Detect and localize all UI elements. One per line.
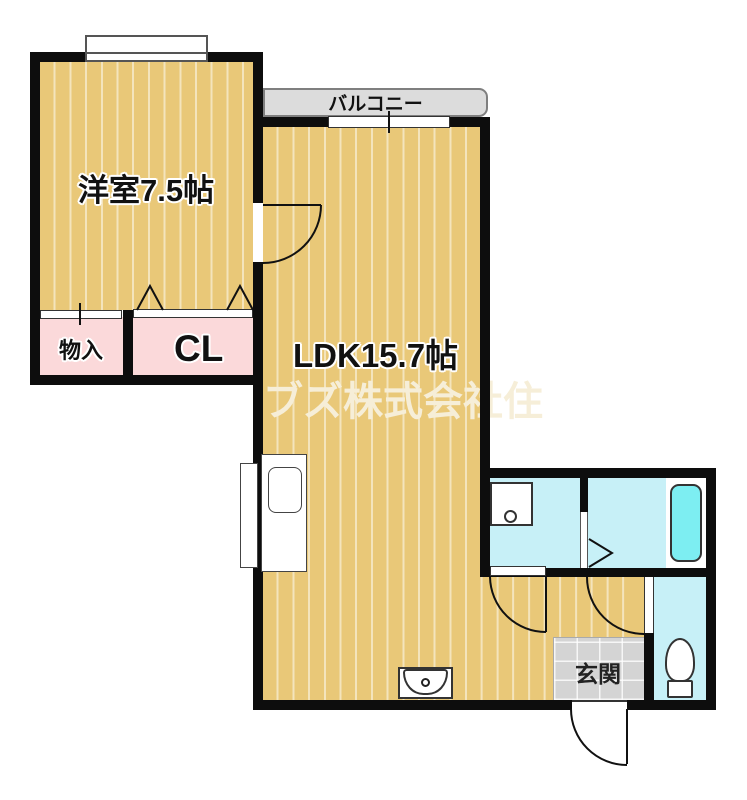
wall-washroom-bath <box>580 478 588 512</box>
washroom-door-gap <box>490 566 546 576</box>
wall-right-ldk <box>480 117 490 577</box>
western-window <box>85 35 208 62</box>
ldk-label: LDK15.7帖 <box>293 329 458 377</box>
toilet-door-gap <box>644 577 654 633</box>
bathroom-floor <box>588 478 666 568</box>
storage-label: 物入 <box>59 333 103 365</box>
wall-bottom-western-block <box>30 375 263 385</box>
watermark-text: ブズ株式会社住 <box>263 369 543 427</box>
western-window-divider <box>87 52 206 54</box>
bath-door-gap <box>580 512 588 568</box>
entrance-label: 玄関 <box>575 655 621 689</box>
storage-door-band <box>40 310 122 319</box>
wall-storage-closet <box>123 310 133 385</box>
wall-left-ldk <box>253 52 263 710</box>
western-door-gap <box>253 203 263 262</box>
balcony-label: バルコニー <box>328 89 423 116</box>
balcony-window <box>328 116 450 128</box>
toilet-tank <box>667 680 693 698</box>
kitchen-sink <box>268 467 302 513</box>
entrance-door-gap <box>572 700 627 710</box>
wall-right-outer <box>706 468 716 710</box>
entrance-door-arc <box>571 709 627 765</box>
closet-label: CL <box>174 328 223 370</box>
wall-top-sanitary <box>480 468 716 478</box>
wall-left-western <box>30 52 40 385</box>
washbasin-drain <box>421 678 430 687</box>
washing-machine-drain <box>504 510 517 523</box>
toilet-bowl <box>665 638 695 682</box>
closet-door-band <box>133 309 253 318</box>
bathtub <box>670 484 702 562</box>
kitchen-counter-outer <box>240 463 258 568</box>
western-room-label: 洋室7.5帖 <box>78 165 214 210</box>
floor-plan: ブズ株式会社住 バルコニー <box>0 0 747 800</box>
balcony: バルコニー <box>263 88 488 117</box>
